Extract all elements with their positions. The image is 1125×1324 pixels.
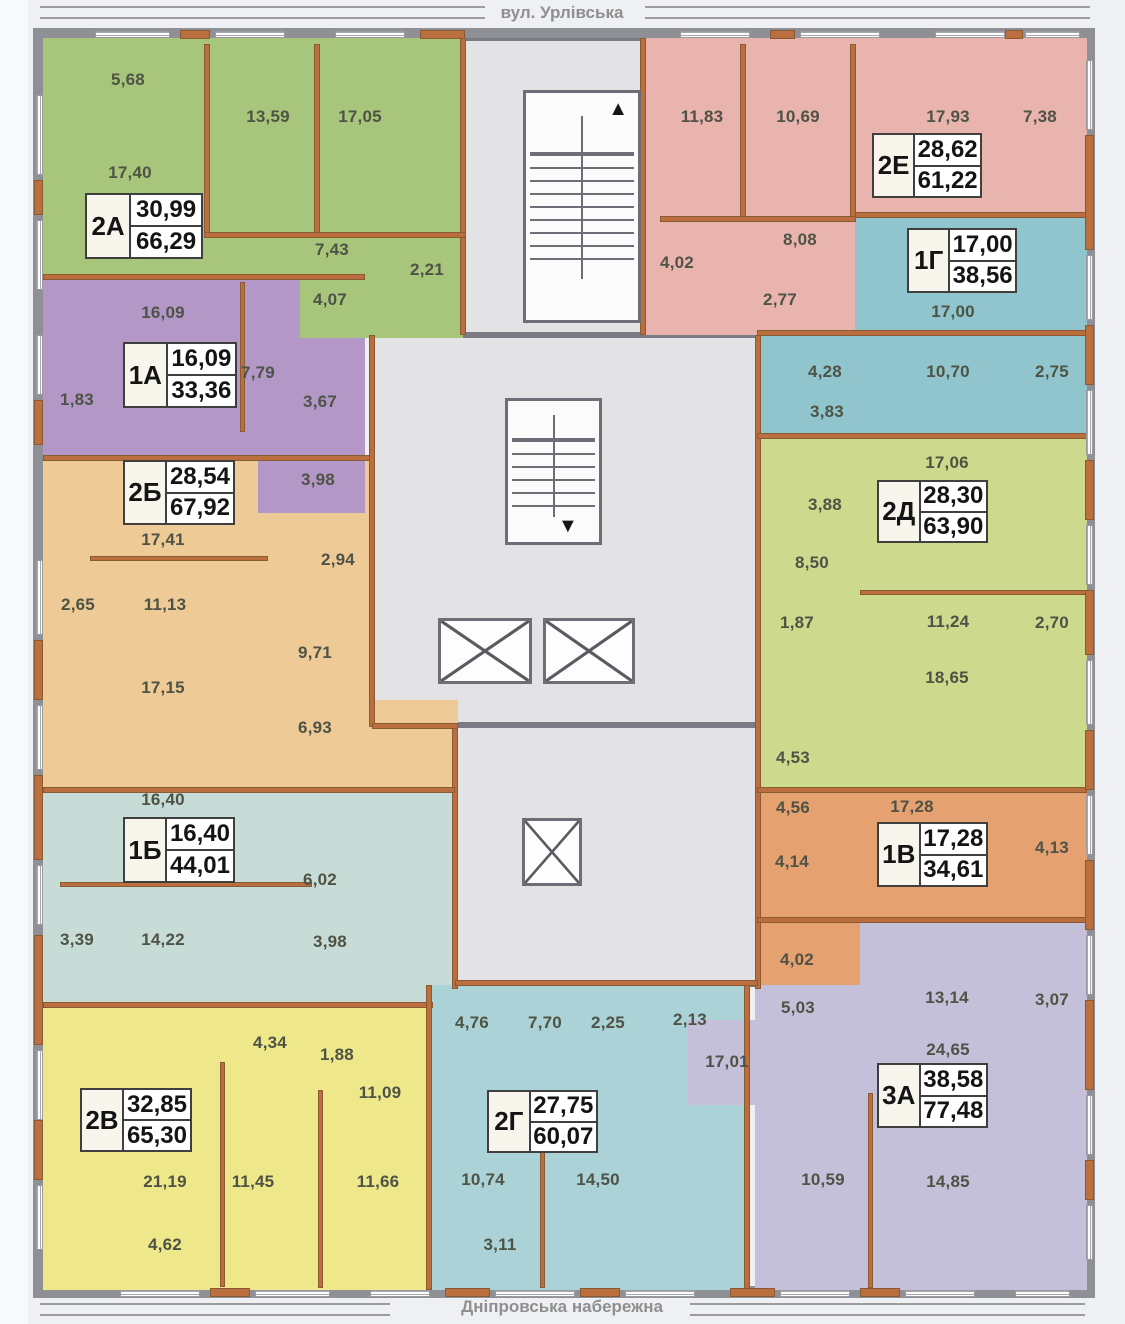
- apartment-label-box: 2Д28,3063,90: [877, 480, 988, 543]
- room-area-label: 4,76: [455, 1013, 489, 1033]
- wall-segment: [757, 787, 1087, 793]
- room-area-label: 11,45: [232, 1172, 275, 1192]
- brick-pier: [34, 640, 43, 700]
- wall-segment: [452, 727, 458, 989]
- brick-pier: [34, 775, 43, 860]
- room-area-label: 5,03: [781, 998, 815, 1018]
- wall-segment: [90, 556, 268, 561]
- room-area-label: 14,22: [141, 930, 185, 950]
- wall-segment: [369, 335, 375, 727]
- apartment-label-box: 1Б16,4044,01: [123, 817, 235, 883]
- room-area-label: 2,25: [591, 1013, 625, 1033]
- brick-pier: [445, 1288, 490, 1297]
- apartment-id: 2В: [82, 1090, 124, 1150]
- apartment-areas: 32,8565,30: [124, 1090, 190, 1150]
- wall-segment: [204, 232, 466, 238]
- brick-pier: [34, 180, 43, 215]
- living-area: 30,99: [131, 195, 201, 227]
- brick-pier: [1085, 135, 1094, 250]
- wall-segment: [860, 590, 1087, 595]
- wall-segment: [660, 216, 856, 222]
- apartment-label-box: 2В32,8565,30: [80, 1088, 192, 1152]
- brick-pier: [770, 30, 795, 39]
- living-area: 16,40: [167, 819, 233, 851]
- total-area: 65,30: [124, 1121, 190, 1150]
- street-label-bottom: Дніпровська набережна: [461, 1297, 663, 1317]
- room-area-label: 4,28: [808, 362, 842, 382]
- room-area-label: 10,59: [801, 1170, 845, 1190]
- room-area-label: 9,71: [298, 643, 332, 663]
- room-area-label: 6,93: [298, 718, 332, 738]
- brick-pier: [180, 30, 210, 39]
- room-area-label: 13,59: [246, 107, 290, 127]
- apartment-label-box: 2Г27,7560,07: [487, 1090, 598, 1153]
- apartment-label-box: 2Е28,6261,22: [872, 133, 982, 198]
- brick-pier: [580, 1288, 620, 1297]
- floor-plan: вул. Урлівська 17,412,942,6511,139,7117,…: [0, 0, 1125, 1324]
- street-line-top-left: [40, 6, 485, 19]
- room-area-label: 4,14: [775, 852, 809, 872]
- room-area-label: 17,28: [890, 797, 934, 817]
- apartment-areas: 17,2834,61: [921, 824, 986, 885]
- living-area: 16,09: [168, 344, 235, 376]
- window: [335, 31, 405, 38]
- wall-segment: [204, 44, 210, 236]
- room-area-label: 13,14: [925, 988, 969, 1008]
- room-area-label: 2,65: [61, 595, 95, 615]
- living-area: 27,75: [531, 1092, 596, 1123]
- elevator-shaft: [438, 618, 532, 684]
- total-area: 34,61: [921, 856, 986, 886]
- room-area-label: 3,67: [303, 392, 337, 412]
- room-area-label: 18,65: [925, 668, 969, 688]
- room-area-label: 3,39: [60, 930, 94, 950]
- brick-pier: [34, 400, 43, 445]
- room-area-label: 11,24: [927, 612, 970, 632]
- total-area: 61,22: [915, 167, 980, 197]
- room-area-label: 17,05: [338, 107, 382, 127]
- wall-segment: [372, 723, 458, 729]
- window: [36, 705, 43, 770]
- brick-pier: [210, 1288, 250, 1297]
- window: [1086, 935, 1093, 995]
- wall-segment: [318, 1090, 323, 1288]
- room-area-label: 6,02: [303, 870, 337, 890]
- elevator-cross-icon: [525, 821, 579, 883]
- elevator-cross-icon: [546, 621, 632, 681]
- room-area-label: 1,88: [320, 1045, 354, 1065]
- room-area-label: 24,65: [926, 1040, 970, 1060]
- apartment-label-box: 1Г17,0038,56: [907, 228, 1017, 293]
- brick-pier: [1085, 730, 1094, 790]
- apartment-region: [640, 215, 855, 335]
- apartment-id: 1А: [125, 344, 168, 406]
- apartment-areas: 28,5467,92: [167, 462, 233, 523]
- wall-segment: [314, 44, 320, 236]
- wall-segment: [426, 985, 432, 1290]
- window: [1086, 60, 1093, 130]
- staircase: ▲: [523, 90, 641, 323]
- window: [1086, 255, 1093, 320]
- apartment-areas: 28,3063,90: [921, 482, 986, 541]
- apartment-label-box: 1А16,0933,36: [123, 342, 237, 408]
- room-area-label: 16,40: [141, 790, 185, 810]
- total-area: 33,36: [168, 376, 235, 406]
- room-area-label: 17,15: [141, 678, 185, 698]
- wall-segment: [740, 44, 746, 220]
- room-area-label: 11,66: [357, 1172, 400, 1192]
- room-area-label: 17,01: [705, 1052, 749, 1072]
- window: [1086, 1095, 1093, 1155]
- wall-segment: [455, 980, 758, 986]
- room-area-label: 3,83: [810, 402, 844, 422]
- apartment-label-box: 1В17,2834,61: [877, 822, 988, 887]
- window: [495, 1290, 575, 1297]
- window: [935, 31, 1005, 38]
- room-area-label: 3,98: [301, 470, 335, 490]
- apartment-id: 2Б: [125, 462, 167, 523]
- wall-segment: [460, 38, 466, 335]
- wall-segment: [868, 1093, 873, 1288]
- window: [1086, 795, 1093, 855]
- room-area-label: 8,50: [795, 553, 829, 573]
- room-area-label: 14,85: [926, 1172, 970, 1192]
- elevator-shaft: [543, 618, 635, 684]
- room-area-label: 11,09: [359, 1083, 402, 1103]
- room-area-label: 2,70: [1035, 613, 1069, 633]
- brick-pier: [1085, 860, 1094, 930]
- room-area-label: 17,06: [925, 453, 969, 473]
- page-margin: [0, 0, 28, 1324]
- apartment-id: 1Б: [125, 819, 167, 881]
- room-area-label: 10,74: [461, 1170, 505, 1190]
- wall-segment: [757, 330, 1087, 336]
- apartment-areas: 38,5877,48: [921, 1065, 986, 1126]
- room-area-label: 17,00: [931, 302, 975, 322]
- wall-segment: [757, 917, 1087, 923]
- window: [36, 95, 43, 175]
- apartment-label-box: 2А30,9966,29: [85, 193, 203, 259]
- apartment-region: [370, 700, 458, 792]
- wall-segment: [744, 985, 750, 1290]
- room-area-label: 3,88: [808, 495, 842, 515]
- total-area: 60,07: [531, 1123, 596, 1152]
- window: [1086, 390, 1093, 455]
- room-area-label: 4,07: [313, 290, 347, 310]
- brick-pier: [860, 1288, 900, 1297]
- window: [1086, 660, 1093, 725]
- room-area-label: 10,70: [926, 362, 970, 382]
- living-area: 28,54: [167, 462, 233, 494]
- wall-segment: [43, 787, 455, 793]
- stair-divider: [581, 116, 583, 279]
- wall-segment: [43, 274, 365, 280]
- window: [36, 1185, 43, 1250]
- window: [1086, 525, 1093, 585]
- room-area-label: 3,07: [1035, 990, 1069, 1010]
- room-area-label: 4,34: [253, 1033, 287, 1053]
- room-area-label: 4,02: [660, 253, 694, 273]
- room-area-label: 17,41: [141, 530, 185, 550]
- room-area-label: 7,43: [315, 240, 349, 260]
- elevator-shaft: [522, 818, 582, 886]
- apartment-region: [755, 985, 860, 1290]
- apartment-id: 3А: [879, 1065, 921, 1126]
- apartment-id: 1Г: [909, 230, 950, 291]
- window: [36, 1050, 43, 1120]
- brick-pier: [1085, 460, 1094, 520]
- brick-pier: [420, 30, 465, 39]
- room-area-label: 10,69: [776, 107, 820, 127]
- room-area-label: 14,50: [576, 1170, 620, 1190]
- window: [780, 1290, 850, 1297]
- room-area-label: 4,56: [776, 798, 810, 818]
- window: [905, 1290, 975, 1297]
- window: [36, 335, 43, 395]
- room-area-label: 7,70: [528, 1013, 562, 1033]
- window: [120, 1290, 200, 1297]
- room-area-label: 16,09: [141, 303, 185, 323]
- window: [215, 31, 285, 38]
- brick-pier: [34, 935, 43, 1045]
- window: [1086, 1205, 1093, 1260]
- window: [36, 560, 43, 635]
- brick-pier: [1085, 590, 1094, 655]
- room-area-label: 3,11: [484, 1235, 517, 1255]
- room-area-label: 17,93: [926, 107, 970, 127]
- apartment-areas: 27,7560,07: [531, 1092, 596, 1151]
- apartment-areas: 30,9966,29: [131, 195, 201, 257]
- apartment-region: [43, 790, 455, 1005]
- room-area-label: 2,77: [763, 290, 797, 310]
- window: [370, 1290, 430, 1297]
- staircase: ▼: [505, 398, 602, 545]
- street-line-bottom-left: [40, 1303, 390, 1316]
- room-area-label: 2,75: [1035, 362, 1069, 382]
- apartment-id: 2Е: [874, 135, 915, 196]
- room-area-label: 11,13: [144, 595, 187, 615]
- apartment-id: 2Д: [879, 482, 921, 541]
- window: [625, 1290, 695, 1297]
- wall-segment: [757, 433, 1087, 439]
- room-area-label: 5,68: [111, 70, 145, 90]
- elevator-cross-icon: [441, 621, 529, 681]
- total-area: 63,90: [921, 513, 986, 542]
- room-area-label: 4,62: [148, 1235, 182, 1255]
- street-line-bottom-right: [690, 1303, 1085, 1316]
- apartment-label-box: 2Б28,5467,92: [123, 460, 235, 525]
- room-area-label: 4,53: [776, 748, 810, 768]
- window: [800, 31, 880, 38]
- brick-pier: [1085, 325, 1094, 385]
- living-area: 28,62: [915, 135, 980, 167]
- brick-pier: [1005, 30, 1023, 39]
- room-area-label: 17,40: [108, 163, 152, 183]
- room-area-label: 7,38: [1023, 107, 1057, 127]
- stairs-up-arrow-icon: ▲: [608, 99, 628, 119]
- window: [95, 31, 170, 38]
- total-area: 38,56: [950, 262, 1015, 292]
- apartment-areas: 16,4044,01: [167, 819, 233, 881]
- room-area-label: 3,98: [313, 932, 347, 952]
- total-area: 44,01: [167, 851, 233, 881]
- room-area-label: 1,83: [60, 390, 94, 410]
- brick-pier: [34, 1120, 43, 1180]
- room-area-label: 2,21: [410, 260, 444, 280]
- window: [680, 31, 750, 38]
- street-line-top-right: [645, 6, 1090, 19]
- living-area: 28,30: [921, 482, 986, 513]
- apartment-areas: 17,0038,56: [950, 230, 1015, 291]
- brick-pier: [1085, 1160, 1094, 1200]
- room-area-label: 2,13: [673, 1010, 707, 1030]
- corridor-core: [455, 725, 758, 987]
- apartment-id: 1В: [879, 824, 921, 885]
- stairs-down-arrow-icon: ▼: [558, 516, 578, 536]
- room-area-label: 7,79: [241, 363, 275, 383]
- living-area: 32,85: [124, 1090, 190, 1121]
- wall-segment: [240, 282, 245, 432]
- apartment-region: [755, 335, 1087, 437]
- living-area: 38,58: [921, 1065, 986, 1097]
- wall-segment: [220, 1062, 225, 1287]
- total-area: 66,29: [131, 227, 201, 257]
- room-area-label: 21,19: [143, 1172, 187, 1192]
- room-area-label: 4,13: [1035, 838, 1069, 858]
- street-label-top: вул. Урлівська: [501, 3, 624, 23]
- wall-segment: [43, 1002, 433, 1008]
- total-area: 67,92: [167, 494, 233, 524]
- room-area-label: 2,94: [321, 550, 355, 570]
- window: [36, 220, 43, 290]
- living-area: 17,00: [950, 230, 1015, 262]
- brick-pier: [730, 1288, 775, 1297]
- brick-pier: [1085, 1000, 1094, 1090]
- window: [1015, 1290, 1070, 1297]
- room-area-label: 11,83: [681, 107, 724, 127]
- living-area: 17,28: [921, 824, 986, 856]
- apartment-areas: 16,0933,36: [168, 344, 235, 406]
- room-area-label: 1,87: [780, 613, 814, 633]
- window: [1025, 31, 1080, 38]
- wall-segment: [850, 44, 856, 220]
- apartment-label-box: 3А38,5877,48: [877, 1063, 988, 1128]
- window: [36, 865, 43, 925]
- stair-divider: [553, 415, 555, 517]
- apartment-areas: 28,6261,22: [915, 135, 980, 196]
- room-area-label: 8,08: [783, 230, 817, 250]
- apartment-id: 2А: [87, 195, 131, 257]
- room-area-label: 4,02: [780, 950, 814, 970]
- window: [255, 1290, 330, 1297]
- total-area: 77,48: [921, 1097, 986, 1127]
- apartment-id: 2Г: [489, 1092, 531, 1151]
- wall-segment: [855, 212, 1087, 218]
